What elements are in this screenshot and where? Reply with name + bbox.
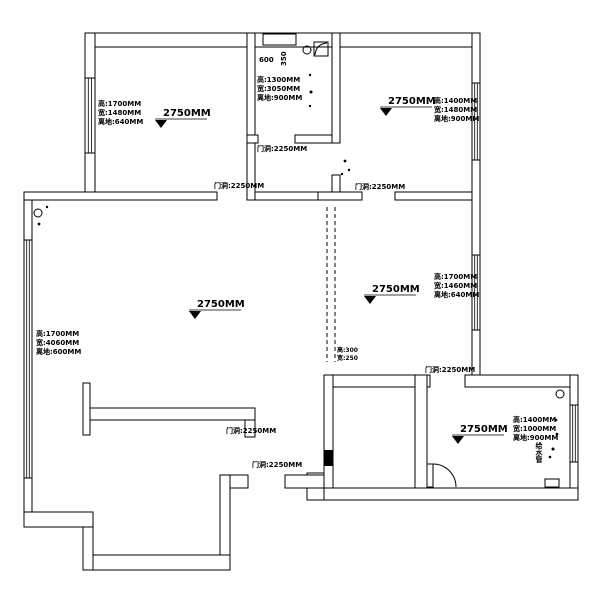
beam-note-line: 高:300 xyxy=(337,346,358,354)
hall-door-swing-icon xyxy=(341,160,350,176)
shaft-box xyxy=(263,34,296,45)
shaft-width-label: 600 xyxy=(259,56,274,64)
column xyxy=(324,450,333,466)
window-spec-top-left: 高:1700MM 宽:1480MM 离地:640MM xyxy=(97,99,143,126)
floor-plan-page: 2750MM 2750MM 2750MM 2750MM 2750MM 高:170 xyxy=(0,0,600,600)
window-spec-line: 宽:1460MM xyxy=(433,281,477,290)
shaft-dimensions: 600 350 xyxy=(259,51,288,66)
level-symbol-icon xyxy=(364,296,376,304)
window-spec-bathroom: 高:1300MM 宽:3050MM 离地:900MM xyxy=(256,75,302,102)
window-hatch-living xyxy=(24,240,32,478)
door-opening-label: 门洞:2250MM xyxy=(226,426,276,435)
window-spec-line: 高:1400MM xyxy=(434,96,477,105)
window-hatch-top-left xyxy=(85,78,95,153)
ceiling-height-label: 2750MM xyxy=(197,299,245,310)
ceiling-height-label: 2750MM xyxy=(388,96,436,107)
threshold-icon xyxy=(545,479,559,487)
door-opening-label: 门洞:2250MM xyxy=(214,181,264,190)
window-spec-line: 离地:900MM xyxy=(434,114,479,123)
window-spec-line: 离地:640MM xyxy=(434,290,479,299)
ceiling-label-bottom-right: 2750MM xyxy=(452,424,508,444)
window-spec-line: 高:1300MM xyxy=(257,75,300,84)
ceiling-label-living: 2750MM xyxy=(189,299,245,319)
window-spec-living: 高:1700MM 宽:4060MM 离地:600MM xyxy=(35,329,81,356)
window-spec-line: 离地:600MM xyxy=(36,347,81,356)
shaft-height-label: 350 xyxy=(280,51,288,66)
floor-plan-svg: 2750MM 2750MM 2750MM 2750MM 2750MM 高:170 xyxy=(0,0,600,600)
window-spec-line: 宽:1480MM xyxy=(97,108,141,117)
beam-note-line: 宽:250 xyxy=(336,354,358,362)
ceiling-label-top-left: 2750MM xyxy=(155,108,211,128)
window-spec-line: 宽:1000MM xyxy=(512,424,556,433)
door-opening-label: 门洞:2250MM xyxy=(252,460,302,469)
window-spec-bottom-right: 高:1400MM 宽:1000MM 离地:900MM xyxy=(512,415,558,442)
level-symbol-icon xyxy=(380,108,392,116)
window-spec-line: 离地:900MM xyxy=(257,93,302,102)
window-spec-line: 宽:4060MM xyxy=(35,338,79,347)
window-spec-line: 高:1700MM xyxy=(98,99,141,108)
door-opening-label: 门洞:2250MM xyxy=(355,182,405,191)
level-symbol-icon xyxy=(189,311,201,319)
window-spec-top-right: 高:1400MM 宽:1480MM 离地:900MM xyxy=(433,96,479,123)
window-spec-line: 离地:640MM xyxy=(98,117,143,126)
window-spec-line: 高:1700MM xyxy=(36,329,79,338)
window-hatch-bottom-right xyxy=(570,405,578,462)
window-spec-line: 宽:1480MM xyxy=(433,105,477,114)
window-spec-line: 宽:3050MM xyxy=(256,84,300,93)
dashed-beam-line xyxy=(327,207,335,362)
window-spec-line: 离地:900MM xyxy=(513,433,558,442)
level-symbol-icon xyxy=(155,120,167,128)
ceiling-height-label: 2750MM xyxy=(460,424,508,435)
corner-symbol-icon xyxy=(34,206,48,226)
ceiling-label-middle-right: 2750MM xyxy=(364,284,420,304)
water-pipe-label: 给水管 xyxy=(535,441,544,464)
drain-circle-icon xyxy=(556,390,564,398)
ceiling-label-top-right: 2750MM xyxy=(380,96,436,116)
door-opening-label: 门洞:2250MM xyxy=(257,144,307,153)
door-opening-label: 门洞:2250MM xyxy=(425,365,475,374)
window-spec-middle-right: 高:1700MM 宽:1460MM 离地:640MM xyxy=(433,272,479,299)
window-spec-line: 高:1700MM xyxy=(434,272,477,281)
ceiling-height-label: 2750MM xyxy=(163,108,211,119)
bottom-right-door-swing-icon xyxy=(427,464,456,487)
ceiling-height-label: 2750MM xyxy=(372,284,420,295)
window-spec-line: 高:1400MM xyxy=(513,415,556,424)
level-symbol-icon xyxy=(452,436,464,444)
beam-note: 高:300 宽:250 xyxy=(336,346,358,362)
